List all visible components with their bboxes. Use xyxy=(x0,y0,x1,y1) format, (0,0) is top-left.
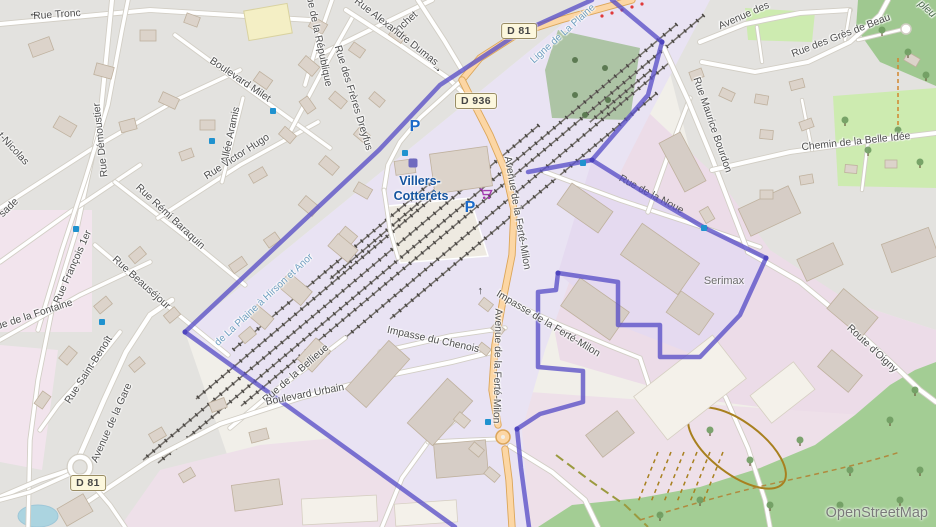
map-base-graphics: Rue de la Noue xyxy=(0,0,936,527)
station-name-line2: Cotterêts xyxy=(394,189,449,203)
parking-icon[interactable]: P xyxy=(465,199,476,217)
bus-stop-icon[interactable] xyxy=(485,419,491,425)
station-name-line1: Villers- xyxy=(399,174,440,188)
industrial-site-label: Serimax xyxy=(704,275,744,287)
bus-stop-icon[interactable] xyxy=(701,225,707,231)
bus-stop-icon[interactable] xyxy=(270,108,276,114)
bus-stop-icon[interactable] xyxy=(209,138,215,144)
railway-station-icon[interactable] xyxy=(409,159,418,168)
road-ref-badge: D 936 xyxy=(455,93,497,109)
bus-stop-icon[interactable] xyxy=(73,226,79,232)
road-ref-badge: D 81 xyxy=(70,475,106,491)
map-canvas[interactable]: Rue de la Noue Rue TroncnchetRue de la R… xyxy=(0,0,936,527)
bus-stop-icon[interactable] xyxy=(99,319,105,325)
road-ref-badge: D 81 xyxy=(501,23,537,39)
bus-stop-icon[interactable] xyxy=(580,160,586,166)
osm-attribution[interactable]: OpenStreetMap xyxy=(826,505,928,521)
parking-icon[interactable]: P xyxy=(410,118,421,136)
bus-stop-icon[interactable] xyxy=(402,150,408,156)
